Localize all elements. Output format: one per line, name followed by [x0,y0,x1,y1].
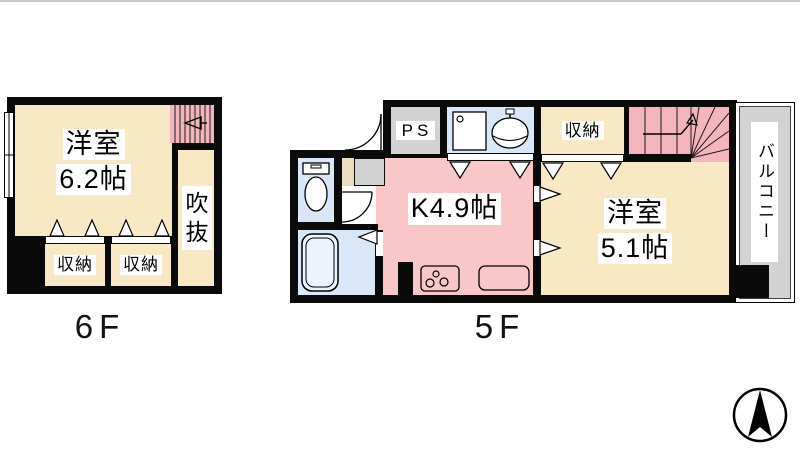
room-name: 洋室 [63,129,125,160]
f5-washroom-top [447,107,534,154]
balcony-label-text: バルコニー [752,142,777,242]
stairs-icon [170,105,214,143]
stairs-icon [629,107,729,162]
f6-closet-right: 収納 [111,244,171,286]
f5-kitchen-door-triangles [447,161,534,179]
f6-stairs [170,105,214,143]
f6-closet-left-track [45,236,105,244]
f6-window [4,112,14,198]
f5-closet-door-track [541,154,624,162]
f5-bottom-wall [290,295,737,303]
f6-closet-door-triangles [40,219,175,237]
f6-closet-left: 収納 [45,244,105,286]
f5-toilet-room [298,158,334,222]
compass-north-icon [728,382,792,446]
f6-floor-label: 6F [55,306,145,348]
entrance-door-arc [345,114,381,150]
closet-label: 収納 [54,255,96,275]
floor-label-text: 6F [75,308,126,346]
ps-label: PS [396,121,436,141]
f6-closet-right-track [111,236,171,244]
room-size: 6.2帖 [56,164,131,195]
stove-icon [420,265,460,293]
floorplan-canvas: 吹抜 洋室 6.2帖 収納 収納 6F [0,0,800,450]
room-name: 洋室 [604,198,666,229]
counter-icon [478,265,530,291]
top-edge-line [0,0,800,2]
f5-closet: 収納 [541,107,624,154]
f5-main-room-label: 洋室 5.1帖 [541,186,729,276]
room-name-void: 吹抜 [186,189,209,247]
f5-stairs [629,107,729,162]
room-name: K4.9帖 [408,193,502,224]
room-size: 5.1帖 [598,233,673,264]
f6-main-room-label: 洋室 6.2帖 [15,116,172,208]
closet-label: 収納 [562,121,604,141]
closet-label: 収納 [120,255,162,275]
toilet-door-arc [342,192,372,222]
f5-washroom-door-triangle [357,229,379,245]
f5-kitchen-label: K4.9帖 [376,190,533,228]
f5-bedroom-door-triangles-left [539,184,563,258]
f5-washroom-door-track [447,153,534,161]
f5-pipe-space: PS [391,107,440,154]
washbasin-area-icons [447,107,534,154]
f5-balcony-wall-notch [729,265,769,298]
f5-balcony-label: バルコニー [751,122,778,262]
washbasin-icon [492,118,528,148]
f6-void-label: 吹抜 [182,186,212,250]
f5-floor-label: 5F [455,306,545,348]
toilet-icon [298,158,334,222]
f5-kitchen-wall-stub [398,262,413,295]
floor-label-text: 5F [475,308,526,346]
f5-bedroom-door-triangles-top [541,162,624,180]
window-icon [4,112,14,198]
